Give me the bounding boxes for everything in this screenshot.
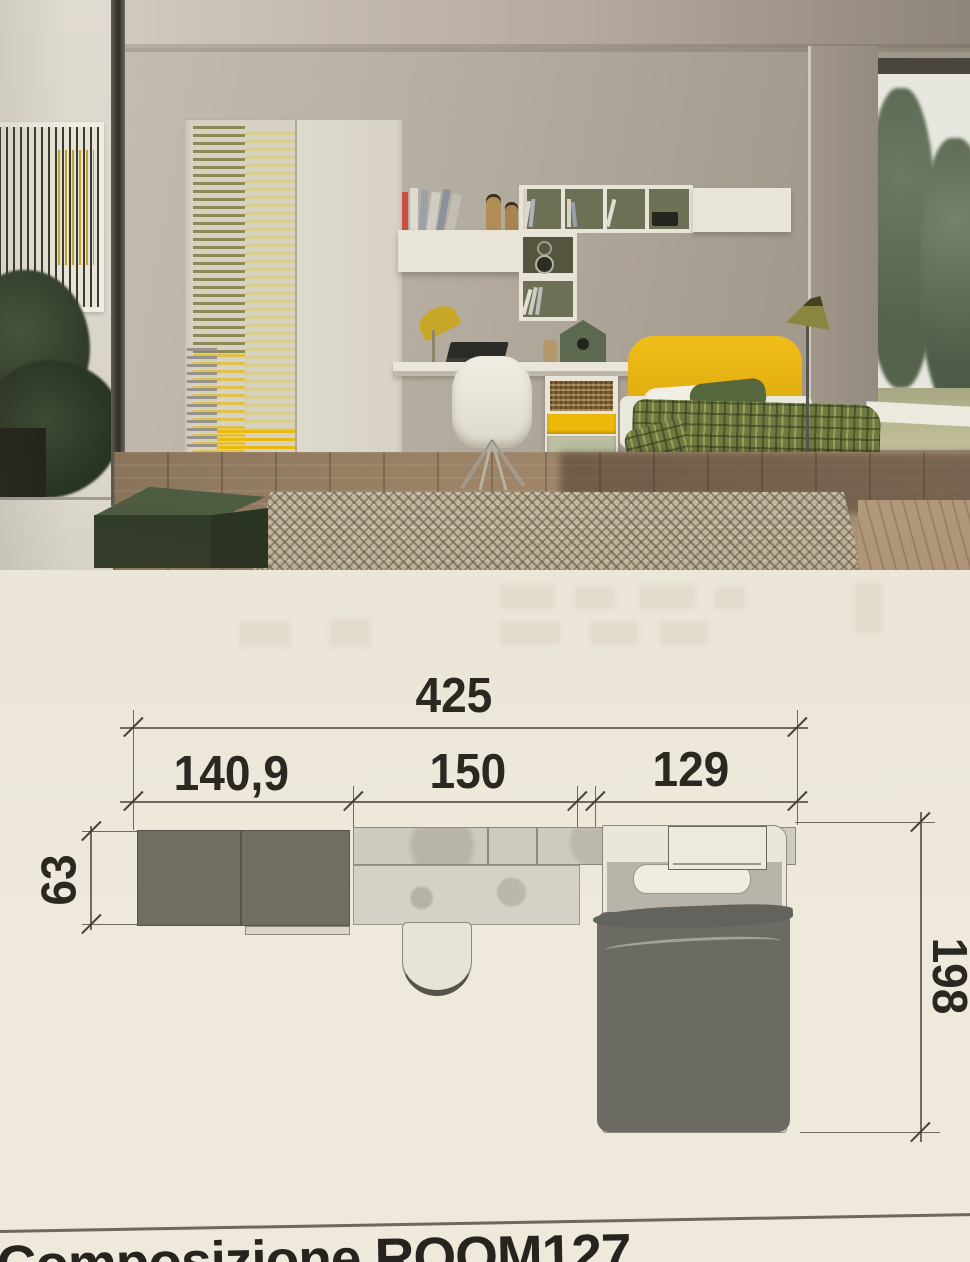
ext-line-desk-end	[577, 786, 578, 830]
plan-chair	[402, 922, 472, 996]
plan-wardrobe	[137, 830, 350, 926]
dimension-bed-width: 129	[652, 742, 729, 798]
floor-plan: 425 140,9 150 129 63 198	[0, 660, 970, 1180]
plan-blanket	[597, 912, 790, 1132]
dim-line-bed-length	[920, 812, 922, 1142]
plan-headboard	[668, 826, 767, 870]
ext-line-bedlen-top	[795, 822, 935, 823]
ext-line-bed-start	[595, 786, 596, 830]
plan-wardrobe-track	[245, 926, 350, 935]
dimension-desk-width: 150	[429, 744, 506, 800]
dim-line-total	[120, 727, 808, 729]
room-photo	[0, 0, 970, 570]
plan-desk	[353, 865, 580, 925]
dimension-depth: 63	[31, 854, 87, 905]
caption-title: Composizione ROOM127	[0, 1221, 631, 1262]
dimension-wardrobe-width: 140,9	[174, 746, 289, 802]
dimension-total-width: 425	[415, 668, 492, 724]
catalog-page: 425 140,9 150 129 63 198	[0, 0, 970, 1262]
photo-vignette	[0, 0, 970, 570]
ext-line-wardrobe-desk	[353, 786, 354, 830]
dimension-bed-length: 198	[921, 938, 970, 1015]
dim-line-depth	[90, 826, 92, 930]
dim-line-segments	[120, 801, 808, 803]
